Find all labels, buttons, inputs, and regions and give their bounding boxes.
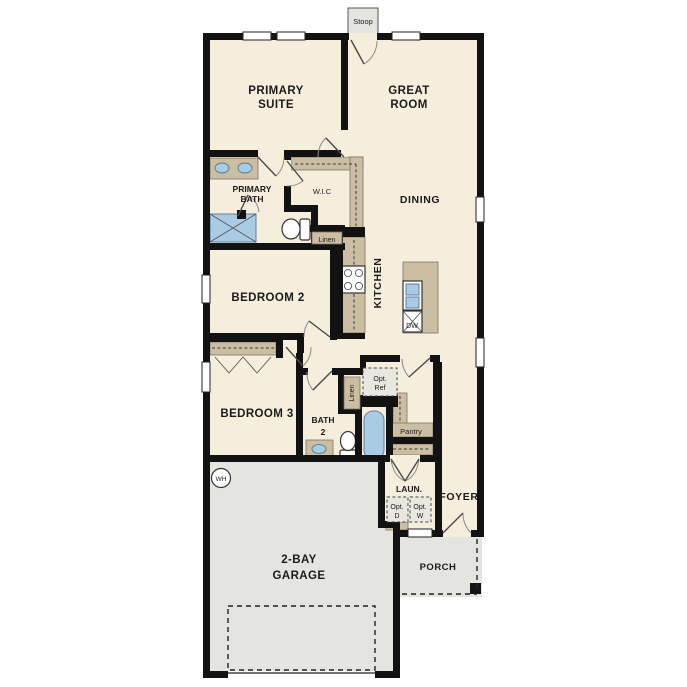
dining-label: DINING bbox=[400, 194, 440, 206]
primary-toilet bbox=[282, 219, 310, 240]
bathtub bbox=[364, 411, 384, 459]
wic-label: W.I.C bbox=[313, 187, 332, 196]
svg-text:BATH: BATH bbox=[241, 194, 264, 204]
vanity-sink bbox=[215, 163, 229, 173]
svg-text:ROOM: ROOM bbox=[390, 99, 427, 111]
window bbox=[277, 32, 305, 40]
svg-text:Ref: Ref bbox=[375, 385, 386, 392]
window bbox=[476, 197, 484, 222]
bath2-toilet bbox=[340, 432, 357, 460]
floor-plan: Stoop PRIMARY SUITE GREAT ROOM PRIMARY B… bbox=[0, 0, 687, 687]
floor-plan-drawing: Stoop PRIMARY SUITE GREAT ROOM PRIMARY B… bbox=[0, 0, 687, 687]
opt-dryer-label: Opt. bbox=[390, 504, 403, 511]
svg-text:D: D bbox=[394, 513, 399, 520]
bath2-sink bbox=[312, 445, 326, 454]
window bbox=[392, 32, 420, 40]
kitchen-label: KITCHEN bbox=[372, 258, 384, 309]
svg-text:2: 2 bbox=[321, 427, 326, 437]
primary-bath-label: PRIMARY bbox=[233, 184, 272, 194]
window bbox=[243, 32, 271, 40]
opt-ref-label: Opt. bbox=[373, 376, 386, 383]
vanity-sink bbox=[238, 163, 252, 173]
bedroom-closet-shelf bbox=[210, 342, 276, 355]
water-heater-label: WH bbox=[216, 476, 227, 483]
window bbox=[408, 529, 432, 537]
window bbox=[476, 338, 484, 367]
pantry-label: Pantry bbox=[400, 427, 422, 436]
range-cooktop bbox=[342, 266, 365, 293]
bath2-label: BATH bbox=[312, 415, 335, 425]
stoop-label: Stoop bbox=[353, 17, 373, 26]
window bbox=[202, 362, 210, 392]
bedroom3-label: BEDROOM 3 bbox=[220, 408, 293, 420]
great-room-label: GREAT bbox=[388, 85, 429, 97]
linen-hall-label: Linen bbox=[318, 237, 335, 244]
linen-bath-label: Linen bbox=[349, 384, 356, 401]
porch-label: PORCH bbox=[420, 562, 457, 573]
svg-text:W: W bbox=[417, 513, 424, 520]
primary-suite-label: PRIMARY bbox=[248, 85, 303, 97]
svg-text:SUITE: SUITE bbox=[258, 99, 294, 111]
bedroom2-label: BEDROOM 2 bbox=[231, 292, 304, 304]
primary-vanity bbox=[210, 158, 258, 179]
window bbox=[202, 275, 210, 303]
svg-text:GARAGE: GARAGE bbox=[273, 570, 326, 582]
foyer-label: FOYER bbox=[439, 491, 478, 503]
garage-slab bbox=[210, 462, 393, 671]
shower bbox=[210, 214, 256, 242]
island-sink bbox=[406, 284, 419, 295]
porch-post bbox=[470, 583, 481, 594]
opt-washer-label: Opt. bbox=[413, 504, 426, 511]
laundry-label: LAUN. bbox=[396, 484, 422, 494]
garage-label: 2-BAY bbox=[281, 554, 316, 566]
dishwasher-label: DW bbox=[406, 323, 418, 330]
